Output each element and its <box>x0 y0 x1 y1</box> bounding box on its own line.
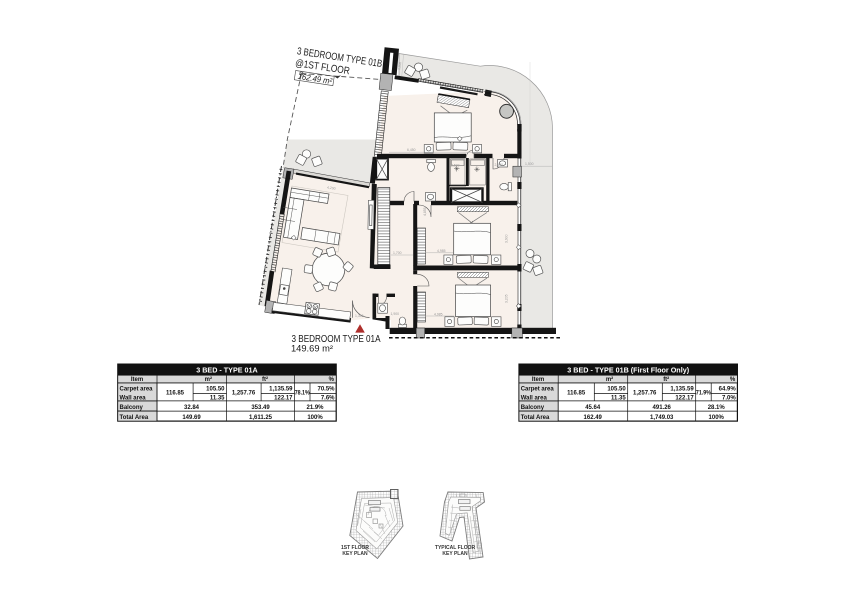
svg-text:1,611.25: 1,611.25 <box>249 415 273 421</box>
svg-text:11.35: 11.35 <box>210 395 225 401</box>
svg-text:Carpet area: Carpet area <box>521 386 555 392</box>
svg-text:116.85: 116.85 <box>166 391 185 397</box>
svg-text:KEY PLAN: KEY PLAN <box>442 551 468 557</box>
svg-text:149.69 m²: 149.69 m² <box>291 344 333 354</box>
svg-text:70.5%: 70.5% <box>317 386 335 392</box>
svg-text:m²: m² <box>205 376 212 383</box>
svg-text:1,900: 1,900 <box>391 312 400 316</box>
svg-text:64.9%: 64.9% <box>719 386 737 392</box>
svg-text:4,855: 4,855 <box>423 207 427 216</box>
svg-text:Item: Item <box>131 377 143 383</box>
svg-text:Wall area: Wall area <box>521 395 548 401</box>
svg-text:1,257.76: 1,257.76 <box>232 391 256 397</box>
svg-text:3,205: 3,205 <box>505 294 509 303</box>
svg-text:116.85: 116.85 <box>567 391 586 397</box>
svg-text:1,500: 1,500 <box>525 162 534 166</box>
svg-text:71.9%: 71.9% <box>696 391 712 397</box>
svg-text:2,400: 2,400 <box>495 163 504 167</box>
svg-text:100%: 100% <box>709 415 725 421</box>
svg-text:1,135.59: 1,135.59 <box>269 386 293 392</box>
svg-text:122.17: 122.17 <box>274 395 293 401</box>
svg-text:ft²: ft² <box>663 376 669 383</box>
svg-text:Carpet area: Carpet area <box>120 386 154 392</box>
svg-text:4,985: 4,985 <box>434 312 443 316</box>
svg-text:162.49: 162.49 <box>584 415 603 421</box>
svg-text:28.1%: 28.1% <box>708 405 726 411</box>
svg-text:32.84: 32.84 <box>184 405 200 411</box>
svg-text:m²: m² <box>606 376 613 383</box>
svg-text:3 BED - TYPE 01A: 3 BED - TYPE 01A <box>196 365 258 374</box>
svg-text:105.50: 105.50 <box>206 386 225 392</box>
svg-text:1,749.03: 1,749.03 <box>650 415 674 421</box>
svg-text:100%: 100% <box>307 415 323 421</box>
svg-text:%: % <box>329 377 335 383</box>
svg-text:6,450: 6,450 <box>407 148 416 152</box>
svg-text:1,300: 1,300 <box>355 314 364 318</box>
svg-text:4,985: 4,985 <box>437 249 446 253</box>
svg-text:353.49: 353.49 <box>251 405 270 411</box>
svg-text:ft²: ft² <box>262 376 268 383</box>
svg-text:1,257.76: 1,257.76 <box>633 391 657 397</box>
svg-text:2,500: 2,500 <box>451 164 460 168</box>
svg-text:1,135.59: 1,135.59 <box>670 386 694 392</box>
svg-text:21.9%: 21.9% <box>306 405 324 411</box>
svg-text:491.26: 491.26 <box>653 405 672 411</box>
svg-text:1,700: 1,700 <box>393 251 402 255</box>
svg-text:3,900: 3,900 <box>505 234 509 243</box>
svg-text:45.64: 45.64 <box>585 405 601 411</box>
svg-text:Total Area: Total Area <box>521 415 550 421</box>
svg-text:105.50: 105.50 <box>607 386 626 392</box>
svg-text:Total Area: Total Area <box>120 415 149 421</box>
svg-text:Balcony: Balcony <box>120 405 144 411</box>
svg-text:3 BED - TYPE 01B (First Floor: 3 BED - TYPE 01B (First Floor Only) <box>567 365 689 374</box>
svg-text:KEY PLAN: KEY PLAN <box>342 551 368 557</box>
svg-text:78.1%: 78.1% <box>295 391 311 397</box>
svg-text:122.17: 122.17 <box>675 395 694 401</box>
svg-text:Item: Item <box>532 377 544 383</box>
svg-text:Wall area: Wall area <box>120 395 147 401</box>
svg-text:7.6%: 7.6% <box>321 395 335 401</box>
svg-text:%: % <box>730 377 736 383</box>
svg-text:Balcony: Balcony <box>521 405 545 411</box>
svg-text:11.35: 11.35 <box>611 395 626 401</box>
svg-text:149.69: 149.69 <box>182 415 201 421</box>
svg-text:7.0%: 7.0% <box>722 395 736 401</box>
